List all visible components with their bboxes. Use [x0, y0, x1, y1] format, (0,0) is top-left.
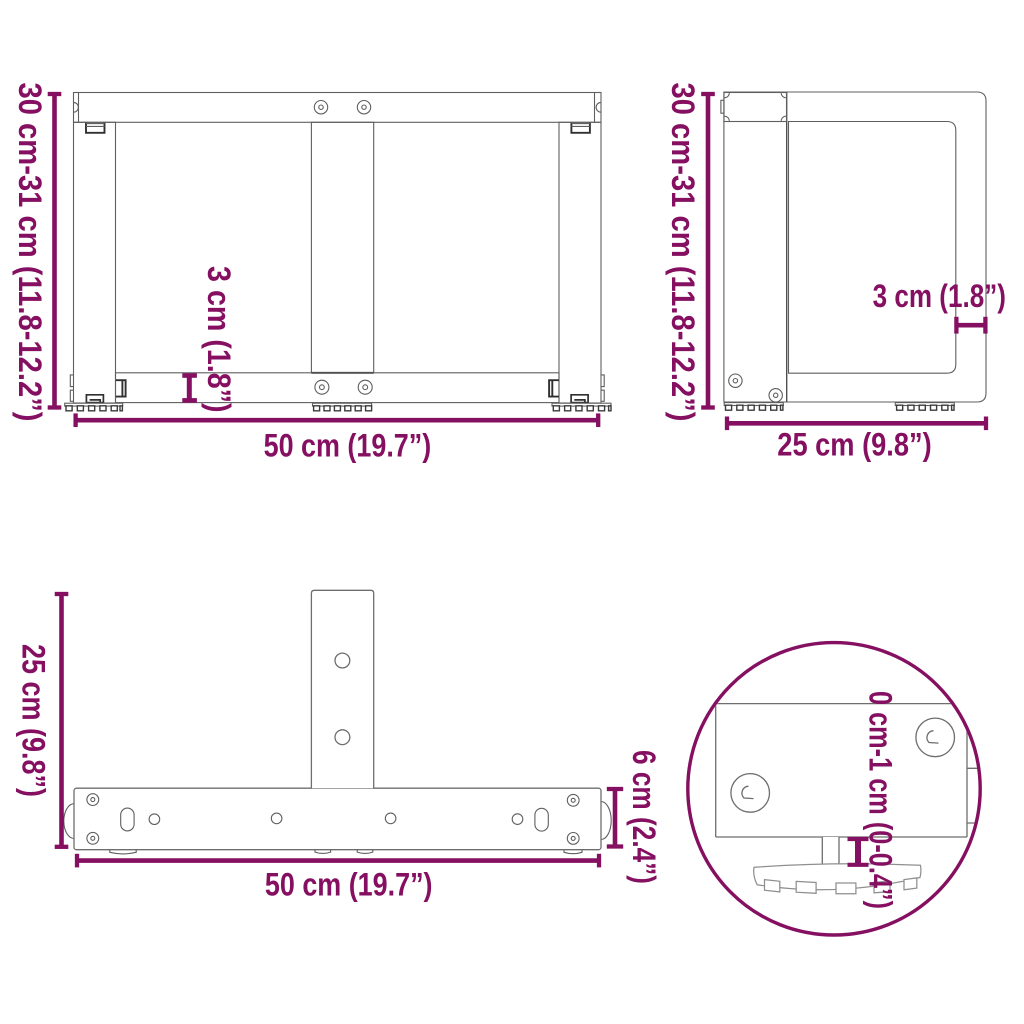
svg-text:3 cm (1.8”): 3 cm (1.8”)	[873, 278, 1006, 314]
svg-text:0 cm-1 cm (0-0.4”): 0 cm-1 cm (0-0.4”)	[863, 691, 899, 909]
svg-text:3 cm (1.8”): 3 cm (1.8”)	[201, 266, 237, 413]
svg-text:30 cm-31 cm (11.8-12.2”): 30 cm-31 cm (11.8-12.2”)	[665, 83, 701, 422]
svg-text:25 cm (9.8”): 25 cm (9.8”)	[16, 644, 52, 797]
svg-text:30 cm-31 cm (11.8-12.2”): 30 cm-31 cm (11.8-12.2”)	[12, 83, 48, 422]
svg-text:6 cm (2.4”): 6 cm (2.4”)	[626, 750, 662, 884]
svg-text:25 cm (9.8”): 25 cm (9.8”)	[777, 427, 931, 463]
svg-text:50 cm (19.7”): 50 cm (19.7”)	[265, 867, 433, 903]
svg-text:50 cm (19.7”): 50 cm (19.7”)	[264, 428, 432, 464]
